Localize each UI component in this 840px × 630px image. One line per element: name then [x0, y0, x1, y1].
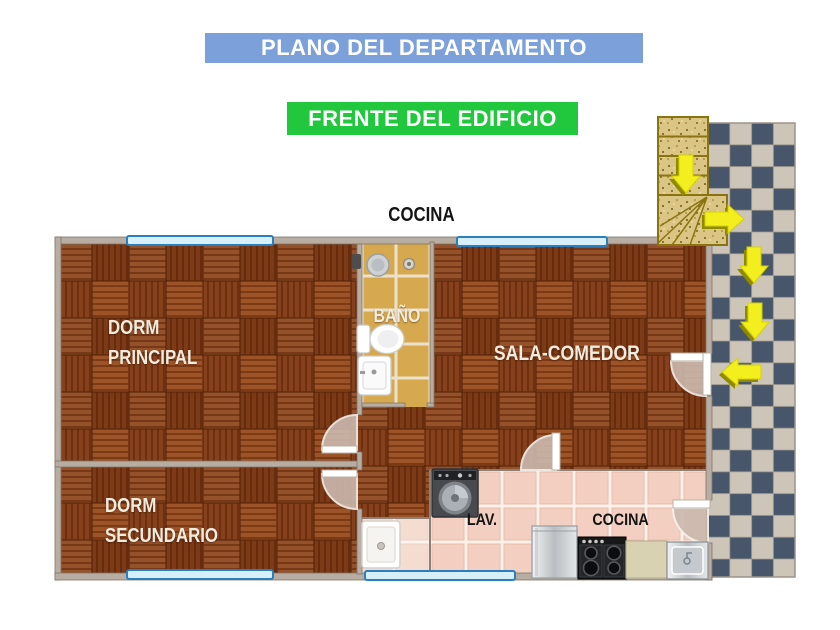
dorm-secundario-label: DORM SECUNDARIO — [105, 491, 239, 551]
title-banner: PLANO DEL DEPARTAMENTO — [205, 33, 643, 63]
shower-drain-inner — [372, 259, 385, 272]
living-dining-label: SALA-COMEDOR — [467, 342, 667, 366]
bathroom-sink-icon — [358, 356, 391, 395]
dorm-principal-label: DORM PRINCIPAL — [108, 313, 214, 373]
window-sala — [457, 237, 607, 246]
bathroom-label: BAÑO — [357, 306, 437, 328]
laundry-sink-icon — [362, 521, 400, 568]
floor-drain-dot — [407, 262, 411, 266]
top-kitchen-label: COCINA — [366, 204, 476, 227]
kitchen-sink-icon — [667, 542, 708, 579]
kitchen-counter — [626, 541, 667, 578]
title-banner-label: PLANO DEL DEPARTAMENTO — [261, 35, 587, 61]
building-corridor — [708, 123, 795, 577]
laundry-label: LAV. — [447, 510, 517, 530]
window-lavanderia — [365, 571, 515, 580]
kitchen-label: COCINA — [576, 510, 666, 530]
toilet-icon — [357, 325, 404, 354]
subtitle-banner: FRENTE DEL EDIFICIO — [287, 102, 578, 135]
shower-control-icon — [352, 254, 361, 269]
subtitle-banner-label: FRENTE DEL EDIFICIO — [308, 106, 557, 132]
floor-plan-page: PLANO DEL DEPARTAMENTO FRENTE DEL EDIFIC… — [0, 0, 840, 630]
stove-icon — [578, 537, 626, 579]
refrigerator-icon — [532, 526, 577, 578]
window-dorm-secundario — [127, 570, 273, 579]
window-dorm-principal — [127, 236, 273, 245]
